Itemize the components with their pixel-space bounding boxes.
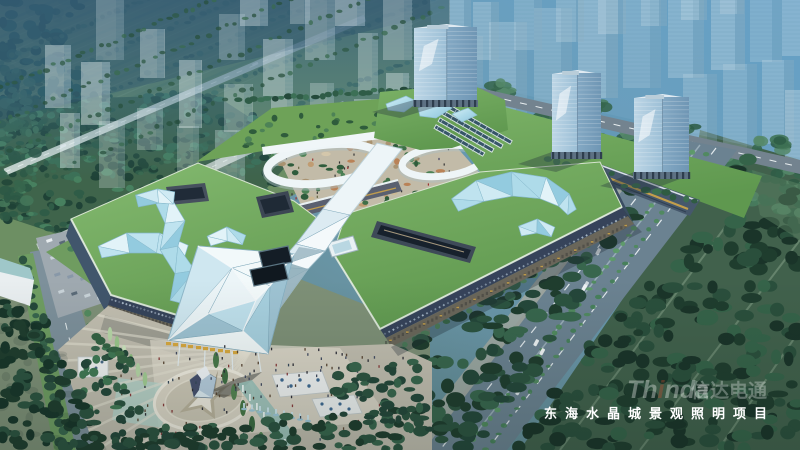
svg-text:信达电通: 信达电通 — [691, 379, 768, 402]
svg-text:东海水晶城景观照明项目: 东海水晶城景观照明项目 — [544, 406, 775, 421]
